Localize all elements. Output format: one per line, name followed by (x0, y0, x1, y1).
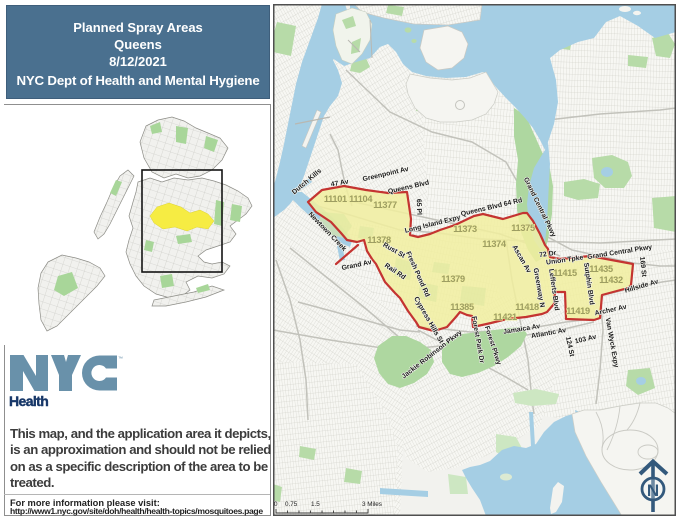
svg-text:0.75: 0.75 (285, 501, 298, 508)
svg-text:11375: 11375 (511, 223, 535, 233)
svg-text:11385: 11385 (450, 302, 474, 312)
svg-text:65 Pl: 65 Pl (415, 199, 423, 215)
svg-text:11435: 11435 (589, 264, 613, 274)
svg-text:11379: 11379 (441, 274, 465, 284)
svg-text:11419: 11419 (566, 306, 590, 316)
svg-text:11377: 11377 (373, 200, 397, 210)
svg-text:N: N (647, 481, 659, 500)
svg-text:11101 11104: 11101 11104 (324, 194, 374, 204)
svg-text:11378: 11378 (367, 235, 391, 245)
svg-text:1.5: 1.5 (311, 501, 320, 508)
svg-text:11432: 11432 (599, 275, 623, 285)
svg-text:0: 0 (274, 501, 278, 508)
svg-text:11373: 11373 (453, 224, 477, 234)
svg-text:11421: 11421 (493, 312, 517, 322)
svg-text:11374: 11374 (482, 239, 507, 249)
svg-text:3 Miles: 3 Miles (362, 501, 382, 508)
svg-text:™: ™ (118, 356, 123, 362)
svg-text:11415: 11415 (553, 268, 577, 278)
svg-text:11418: 11418 (515, 302, 539, 312)
